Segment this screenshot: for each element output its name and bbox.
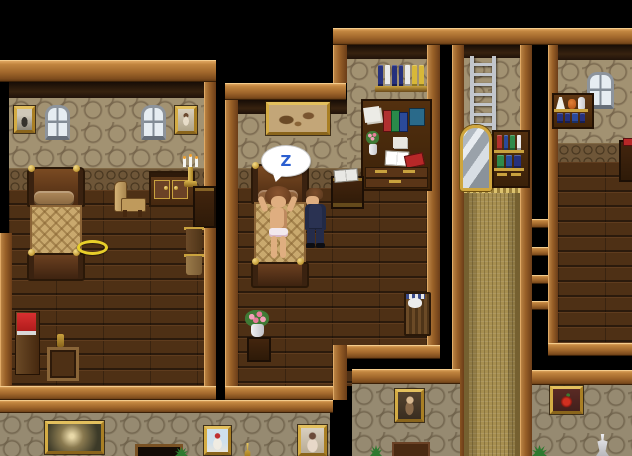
lower-right-beam	[532, 370, 632, 385]
room2-bottom-frame	[225, 386, 346, 400]
gold-ring-item[interactable]	[77, 240, 108, 255]
painting-woman-portrait	[175, 106, 197, 134]
corridor-carpet	[464, 193, 520, 456]
room2-corner-frame	[333, 345, 347, 400]
red-sign-cabinet[interactable]	[15, 311, 40, 375]
flower-vase-stand	[244, 310, 270, 358]
hatch-handle[interactable]	[57, 334, 64, 347]
woman-face	[271, 196, 286, 208]
laundry-basket[interactable]	[404, 292, 431, 336]
woman-torso	[270, 208, 287, 230]
lower-mid-beam	[352, 369, 460, 384]
man-suit	[305, 204, 326, 230]
room1-window-right	[141, 105, 166, 140]
room2-bottomright-frame	[333, 345, 440, 359]
painting-portrait-woman	[395, 389, 424, 422]
painting-man-portrait	[14, 106, 35, 133]
room1-window-left	[45, 105, 70, 140]
chair[interactable]	[112, 181, 146, 217]
man-in-suit-character[interactable]	[303, 188, 330, 250]
room2-step-frame	[333, 45, 347, 83]
corridor-bookshelf[interactable]	[492, 130, 530, 188]
nightstand-room1[interactable]	[193, 186, 216, 228]
floor-hatch[interactable]	[47, 347, 79, 381]
candelabra	[181, 156, 201, 188]
bed-room1[interactable]	[27, 167, 81, 277]
painting-apple	[550, 386, 583, 414]
open-book-on-nightstand[interactable]	[333, 168, 358, 183]
lower-cabinet[interactable]	[392, 442, 430, 456]
room2-left-frame	[225, 100, 238, 400]
doorway-trim-3	[532, 275, 548, 284]
room4-left-frame	[548, 45, 558, 356]
room1-bottom-frame	[0, 386, 216, 400]
doorway-trim-4	[532, 301, 548, 310]
room2-topleft-beam	[225, 83, 346, 100]
writing-desk[interactable]	[361, 99, 432, 191]
room4-floor	[558, 162, 632, 343]
room1-top-beam	[0, 60, 216, 82]
room2-wall-shelf[interactable]	[375, 63, 427, 93]
painting-map	[266, 102, 330, 135]
ladder[interactable]	[470, 56, 496, 134]
lower-left-beam	[0, 400, 333, 413]
doorway-trim-2	[532, 247, 548, 256]
painting-lady-small	[298, 425, 327, 456]
room4-bottom-frame	[548, 343, 632, 356]
sleep-speech-bubble: Z	[262, 146, 310, 176]
room1-left-frame	[0, 233, 12, 400]
room4-potion-shelf[interactable]	[552, 93, 594, 129]
painting-landscape	[45, 421, 104, 454]
towel-rack	[184, 227, 204, 279]
room2-corridor-top-beam	[333, 28, 632, 45]
room1-right-frame	[204, 82, 216, 400]
sleep-z-text: Z	[281, 154, 292, 169]
lower-door[interactable]	[135, 444, 183, 456]
doorway-trim-1	[532, 219, 548, 228]
game-scene: Z	[0, 0, 632, 456]
corridor-right-frame	[520, 45, 532, 456]
bed1-pillow	[34, 191, 74, 206]
painting-figure-small	[204, 426, 231, 455]
room4-desk-partial[interactable]	[619, 140, 632, 182]
mirror[interactable]	[460, 125, 492, 191]
sleeping-woman-character[interactable]	[257, 186, 299, 270]
